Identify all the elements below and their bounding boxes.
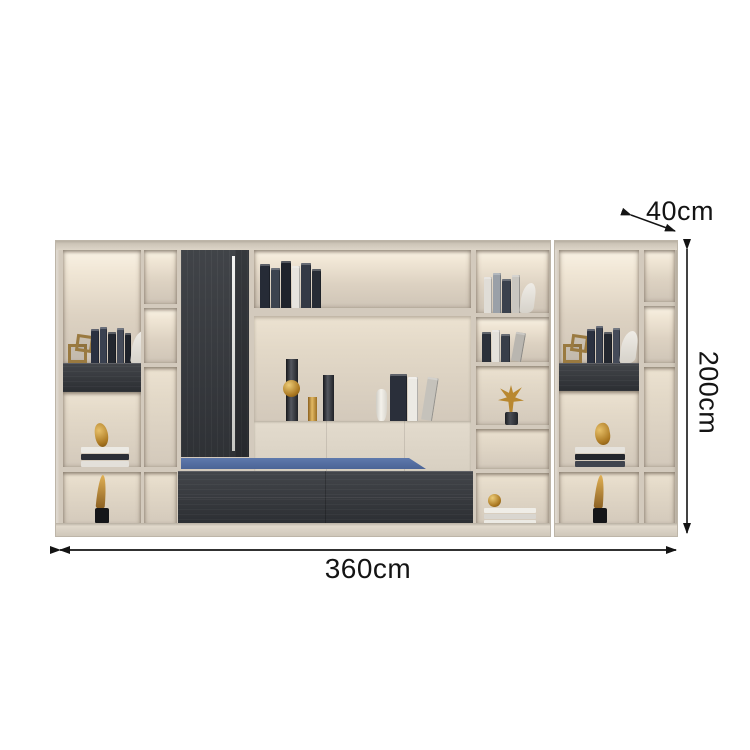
cabinet-door bbox=[181, 250, 249, 457]
book bbox=[575, 447, 625, 453]
book-spine bbox=[484, 277, 492, 313]
drawer-seam bbox=[178, 497, 473, 498]
vase-decor bbox=[376, 389, 387, 421]
shelf-cell bbox=[144, 472, 177, 525]
book-spine bbox=[587, 329, 595, 363]
book bbox=[81, 447, 129, 453]
book-spine bbox=[501, 334, 510, 362]
shelf-cell bbox=[144, 250, 177, 304]
gold-bird-decor bbox=[593, 422, 612, 446]
cabinet-base bbox=[56, 523, 550, 536]
book-spine bbox=[596, 326, 603, 363]
shelf-cell bbox=[476, 317, 549, 362]
book bbox=[484, 508, 536, 513]
gold-ball-decor bbox=[488, 494, 501, 507]
door-edge-strip bbox=[235, 250, 249, 457]
book-spine bbox=[390, 374, 407, 421]
gold-sculpture-decor bbox=[93, 422, 109, 448]
book-spine bbox=[281, 261, 291, 308]
book-spine bbox=[91, 329, 99, 363]
cabinet-main-unit bbox=[55, 240, 551, 537]
gold-ball-decor bbox=[283, 380, 300, 397]
bookend-decor bbox=[619, 331, 639, 363]
vase-decor bbox=[505, 412, 518, 425]
book-spine bbox=[100, 327, 107, 363]
shelf-cell bbox=[644, 367, 675, 467]
book-spine bbox=[511, 332, 526, 362]
book bbox=[575, 454, 625, 460]
cabinet-top-panel bbox=[56, 241, 550, 250]
decor-base bbox=[593, 508, 607, 523]
cabinet-base bbox=[555, 523, 677, 536]
book-spine bbox=[604, 332, 612, 363]
book-spine bbox=[492, 330, 500, 362]
decor-base bbox=[95, 508, 109, 523]
book bbox=[81, 454, 129, 460]
book bbox=[575, 461, 625, 467]
shelf-cell bbox=[254, 250, 471, 308]
width-dimension-label: 360cm bbox=[288, 553, 448, 585]
shelf-cell bbox=[559, 391, 639, 467]
books-decor bbox=[91, 327, 141, 363]
book-spine bbox=[117, 328, 124, 363]
books-decor bbox=[260, 261, 321, 308]
book-spine bbox=[292, 266, 300, 308]
book-spine bbox=[271, 268, 280, 308]
shelf-cell bbox=[644, 250, 675, 302]
shelf-cell bbox=[476, 250, 549, 313]
accent-strip bbox=[181, 458, 426, 469]
shelf-cell bbox=[476, 473, 549, 525]
feather-decor bbox=[594, 475, 606, 510]
book-spine bbox=[108, 332, 116, 363]
shelf-cell bbox=[476, 366, 549, 425]
drawer-front bbox=[63, 363, 141, 392]
feather-decor bbox=[96, 475, 108, 510]
book-spine bbox=[408, 377, 418, 421]
book-spine bbox=[421, 377, 439, 421]
cabinet-right-unit bbox=[554, 240, 678, 537]
bookend-decor bbox=[130, 331, 141, 363]
book-spine bbox=[502, 279, 511, 313]
book-stack-decor bbox=[575, 446, 625, 467]
books-decor bbox=[482, 330, 521, 362]
vase-decor bbox=[323, 375, 334, 421]
display-niche bbox=[254, 316, 471, 421]
book-spine bbox=[493, 273, 501, 313]
drawer-front bbox=[559, 363, 639, 391]
book-spine bbox=[482, 332, 491, 362]
shelf-cell bbox=[476, 429, 549, 469]
books-decor bbox=[484, 273, 535, 313]
bottom-drawers bbox=[178, 471, 473, 525]
shelf-cell bbox=[63, 392, 141, 467]
height-dimension-label: 200cm bbox=[693, 349, 724, 437]
book bbox=[484, 514, 536, 519]
shelf-cell bbox=[644, 306, 675, 363]
book bbox=[81, 461, 129, 467]
book-stack-decor bbox=[81, 446, 129, 467]
depth-dimension-label: 40cm bbox=[646, 196, 714, 227]
shelf-cell bbox=[144, 308, 177, 363]
bookend-decor bbox=[519, 283, 537, 313]
shelf-cell bbox=[559, 472, 639, 525]
book-spine bbox=[301, 263, 311, 308]
vase-decor bbox=[308, 397, 317, 421]
product-image: 360cm 200cm 40cm bbox=[0, 0, 750, 750]
book-spine bbox=[312, 269, 321, 308]
shelf-cell bbox=[63, 472, 141, 525]
gold-branch-decor bbox=[498, 385, 524, 413]
drawer-seam bbox=[325, 471, 326, 525]
shelf-cell bbox=[63, 250, 141, 363]
shelf-cell bbox=[644, 472, 675, 525]
book-spine bbox=[260, 264, 270, 308]
shelf-cell bbox=[144, 367, 177, 467]
shelf-cell bbox=[559, 250, 639, 363]
cabinet-top-panel bbox=[555, 241, 677, 250]
books-decor bbox=[587, 326, 637, 363]
